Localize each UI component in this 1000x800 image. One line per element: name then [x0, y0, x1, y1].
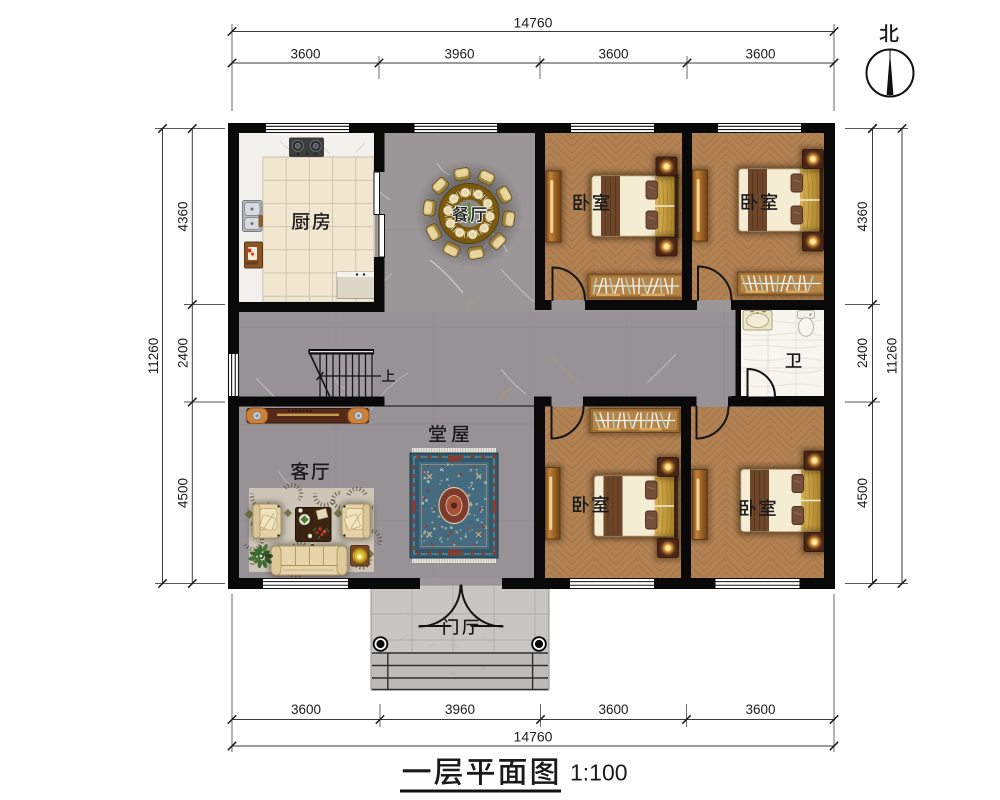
svg-text:2400: 2400 — [855, 338, 870, 368]
svg-text:4360: 4360 — [855, 201, 870, 231]
svg-text:11260: 11260 — [885, 338, 900, 375]
svg-text:4500: 4500 — [176, 478, 191, 508]
svg-text:3600: 3600 — [598, 702, 628, 717]
svg-text:3600: 3600 — [598, 47, 628, 62]
svg-text:3960: 3960 — [444, 47, 474, 62]
svg-text:14760: 14760 — [514, 729, 553, 745]
svg-text:3600: 3600 — [290, 47, 320, 62]
svg-text:1:100: 1:100 — [570, 760, 628, 786]
svg-text:4360: 4360 — [176, 201, 191, 231]
svg-text:3600: 3600 — [745, 47, 775, 62]
svg-text:11260: 11260 — [146, 338, 161, 375]
svg-text:14760: 14760 — [514, 15, 553, 31]
svg-text:3600: 3600 — [291, 702, 321, 717]
svg-text:2400: 2400 — [176, 338, 191, 368]
svg-text:3600: 3600 — [745, 702, 775, 717]
svg-text:3960: 3960 — [445, 702, 475, 717]
svg-text:4500: 4500 — [855, 478, 870, 508]
